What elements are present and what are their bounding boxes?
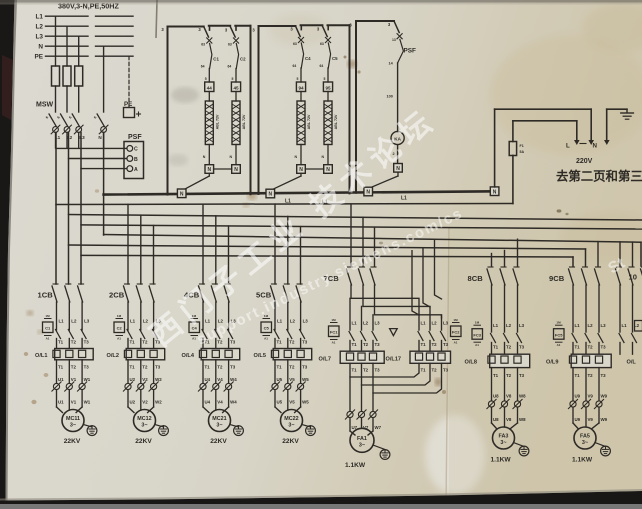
svg-text:T1: T1 (58, 340, 64, 345)
svg-text:22KV: 22KV (135, 438, 152, 445)
svg-text:T2: T2 (432, 342, 438, 347)
svg-text:1M: 1M (556, 321, 561, 325)
svg-text:V1: V1 (71, 400, 77, 405)
svg-text:T3: T3 (230, 340, 236, 345)
svg-text:T2: T2 (142, 340, 148, 345)
svg-text:T3: T3 (375, 342, 381, 347)
svg-text:C5: C5 (332, 56, 338, 61)
svg-text:T1: T1 (352, 368, 358, 373)
svg-text:T3: T3 (519, 373, 525, 378)
svg-text:N: N (366, 190, 370, 196)
svg-text:W5: W5 (302, 377, 309, 382)
svg-text:T2: T2 (142, 365, 148, 370)
svg-text:N: N (295, 155, 298, 159)
svg-text:U2: U2 (130, 400, 136, 405)
svg-text:A1: A1 (264, 337, 268, 341)
svg-text:C: C (134, 147, 138, 153)
svg-text:63: 63 (293, 42, 297, 46)
svg-text:T2: T2 (289, 340, 295, 345)
svg-text:ABL 72V: ABL 72V (307, 114, 311, 129)
svg-text:L2: L2 (506, 323, 512, 328)
svg-text:MC11: MC11 (66, 416, 80, 422)
svg-text:1.1KW: 1.1KW (572, 457, 593, 464)
svg-text:1M: 1M (117, 314, 122, 318)
svg-text:T3: T3 (375, 368, 381, 373)
svg-text:N: N (230, 155, 233, 159)
svg-text:W7: W7 (375, 425, 382, 430)
svg-text:N: N (268, 192, 272, 198)
svg-text:T1: T1 (493, 345, 499, 350)
svg-text:T3: T3 (155, 365, 161, 370)
svg-text:V1: V1 (71, 377, 77, 382)
svg-text:T3: T3 (443, 342, 449, 347)
svg-text:T2: T2 (71, 340, 77, 345)
svg-text:1M: 1M (45, 314, 50, 318)
svg-text:L1: L1 (575, 323, 581, 328)
svg-text:T1: T1 (277, 340, 283, 345)
svg-text:L1: L1 (493, 323, 499, 328)
svg-text:T1: T1 (575, 345, 581, 350)
svg-text:L: L (566, 143, 570, 150)
svg-text:9CB: 9CB (549, 274, 565, 283)
svg-text:FC1: FC1 (330, 330, 338, 335)
svg-text:O/L8: O/L8 (465, 360, 477, 366)
svg-text:3~: 3~ (141, 423, 147, 429)
svg-text:63: 63 (320, 42, 324, 46)
svg-text:95: 95 (325, 85, 331, 90)
svg-text:A1: A1 (557, 343, 561, 347)
svg-text:1M: 1M (331, 318, 336, 322)
svg-text:220V: 220V (576, 158, 593, 165)
svg-text:5A: 5A (520, 150, 525, 154)
svg-text:C4: C4 (305, 56, 311, 61)
svg-text:V5: V5 (289, 400, 295, 405)
svg-text:T1: T1 (277, 365, 283, 370)
svg-text:L2: L2 (67, 135, 73, 140)
svg-text:FA5: FA5 (580, 434, 590, 440)
svg-text:T1: T1 (58, 365, 64, 370)
svg-text:5: 5 (205, 77, 207, 81)
svg-text:ABL 72V: ABL 72V (334, 114, 338, 129)
svg-text:FC2: FC2 (452, 330, 460, 335)
svg-text:13: 13 (392, 38, 396, 42)
svg-text:MSW: MSW (36, 102, 54, 109)
svg-text:1M: 1M (453, 318, 458, 322)
svg-text:T2: T2 (506, 345, 512, 350)
svg-text:U9: U9 (575, 394, 581, 399)
svg-text:100: 100 (387, 95, 393, 99)
svg-text:L2: L2 (432, 321, 438, 326)
svg-text:U9: U9 (575, 417, 581, 422)
svg-text:O/L2: O/L2 (107, 353, 119, 359)
svg-text:N: N (593, 143, 598, 150)
svg-text:22KV: 22KV (64, 438, 81, 445)
svg-text:T2: T2 (289, 365, 295, 370)
svg-text:L3: L3 (79, 135, 85, 140)
svg-text:V8: V8 (506, 394, 512, 399)
svg-text:C2: C2 (117, 326, 123, 331)
svg-text:45: 45 (233, 85, 239, 90)
svg-text:22KV: 22KV (282, 438, 299, 445)
svg-text:63: 63 (228, 43, 232, 47)
svg-text:T1: T1 (421, 342, 427, 347)
svg-text:T2: T2 (588, 345, 594, 350)
svg-text:T1: T1 (575, 373, 581, 378)
svg-text:L3: L3 (303, 319, 309, 324)
svg-text:A1: A1 (46, 337, 50, 341)
svg-text:T3: T3 (302, 365, 308, 370)
svg-text:3~: 3~ (359, 442, 365, 448)
svg-text:94: 94 (298, 85, 304, 90)
svg-text:MC21: MC21 (212, 416, 226, 422)
svg-text:T3: T3 (601, 373, 607, 378)
svg-text:T1: T1 (421, 368, 427, 373)
svg-text:W4: W4 (230, 400, 237, 405)
svg-text:O/L4: O/L4 (182, 353, 195, 359)
svg-text:T3: T3 (230, 365, 236, 370)
svg-text:A1: A1 (117, 337, 121, 341)
svg-text:T1: T1 (205, 365, 211, 370)
svg-text:N: N (203, 155, 206, 159)
svg-text:W9: W9 (601, 394, 608, 399)
svg-text:U5: U5 (277, 400, 283, 405)
svg-text:L2: L2 (71, 319, 77, 324)
svg-text:3~: 3~ (288, 423, 294, 429)
svg-text:L1: L1 (277, 319, 283, 324)
svg-text:U8: U8 (493, 417, 499, 422)
svg-text:5: 5 (297, 77, 299, 81)
svg-text:T2: T2 (363, 342, 369, 347)
svg-text:V2: V2 (142, 400, 148, 405)
svg-text:W2: W2 (155, 377, 162, 382)
svg-text:V2: V2 (142, 377, 148, 382)
svg-text:L1: L1 (36, 14, 44, 21)
svg-text:T3: T3 (84, 365, 90, 370)
svg-text:V9: V9 (588, 394, 594, 399)
svg-text:L3: L3 (519, 323, 525, 328)
svg-text:3~: 3~ (500, 440, 506, 446)
svg-text:L2: L2 (36, 24, 44, 31)
svg-text:W1: W1 (84, 400, 91, 405)
svg-text:C1: C1 (45, 326, 51, 331)
svg-text:U1: U1 (58, 400, 64, 405)
svg-text:8CB: 8CB (468, 274, 484, 283)
svg-text:A1: A1 (475, 343, 479, 347)
svg-text:T3: T3 (519, 345, 525, 350)
svg-text:N: N (38, 44, 43, 51)
svg-text:L1: L1 (352, 321, 358, 326)
svg-text:64: 64 (228, 65, 232, 69)
svg-text:B: B (134, 157, 138, 163)
svg-text:PSF: PSF (404, 48, 417, 55)
svg-text:5: 5 (232, 77, 234, 81)
svg-text:T1: T1 (352, 342, 358, 347)
svg-text:C5: C5 (264, 326, 270, 331)
svg-text:FA3: FA3 (499, 434, 509, 440)
svg-text:1.1KW: 1.1KW (491, 457, 512, 464)
svg-text:N: N (207, 167, 211, 173)
svg-text:O/L5: O/L5 (254, 353, 266, 359)
svg-text:FC5: FC5 (555, 332, 563, 337)
svg-text:PSF: PSF (128, 134, 142, 141)
svg-text:L3: L3 (36, 34, 44, 41)
svg-text:W4: W4 (230, 377, 237, 382)
svg-text:T2: T2 (217, 365, 223, 370)
svg-text:1.1KW: 1.1KW (345, 462, 366, 469)
svg-text:1M: 1M (475, 321, 480, 325)
svg-text:L2: L2 (588, 323, 594, 328)
svg-text:PE: PE (34, 54, 43, 61)
svg-text:A1: A1 (332, 341, 336, 345)
svg-text:去第二页和第三: 去第二页和第三 (556, 169, 642, 184)
svg-text:T3: T3 (302, 340, 308, 345)
svg-text:C1: C1 (213, 57, 219, 62)
svg-text:A: A (134, 167, 138, 173)
svg-text:N: N (326, 167, 330, 173)
svg-text:3~: 3~ (70, 423, 76, 429)
svg-text:F1: F1 (520, 144, 524, 148)
svg-text:44: 44 (207, 85, 213, 90)
svg-text:O/L: O/L (627, 360, 637, 366)
svg-text:L1: L1 (59, 319, 65, 324)
svg-text:L2: L2 (290, 319, 296, 324)
svg-text:5: 5 (324, 77, 326, 81)
svg-text:L1: L1 (130, 319, 136, 324)
svg-text:T2: T2 (363, 368, 369, 373)
svg-text:W8: W8 (519, 394, 526, 399)
svg-text:C2: C2 (240, 57, 246, 62)
svg-text:T1: T1 (493, 373, 499, 378)
svg-text:T3: T3 (443, 368, 449, 373)
svg-text:L1: L1 (421, 321, 427, 326)
svg-text:U4: U4 (205, 400, 211, 405)
svg-text:O/L17: O/L17 (386, 357, 402, 363)
svg-text:N: N (396, 166, 400, 172)
svg-text:1CB: 1CB (38, 291, 54, 300)
svg-text:ABL 72V: ABL 72V (242, 114, 246, 129)
svg-text:T2: T2 (71, 365, 77, 370)
svg-text:L1: L1 (622, 323, 628, 328)
svg-text:3~: 3~ (216, 423, 222, 429)
svg-text:T2: T2 (588, 373, 594, 378)
svg-text:63: 63 (201, 43, 205, 47)
svg-text:V5: V5 (289, 377, 295, 382)
svg-text:N: N (180, 191, 184, 197)
svg-text:W1: W1 (84, 377, 91, 382)
svg-text:22KV: 22KV (210, 438, 227, 445)
svg-text:O/L9: O/L9 (546, 360, 558, 366)
svg-text:O/L7: O/L7 (319, 357, 331, 363)
svg-text:A1: A1 (454, 341, 458, 345)
svg-text:V8: V8 (506, 417, 512, 422)
svg-text:64: 64 (293, 64, 297, 68)
svg-text:MC12: MC12 (137, 416, 151, 422)
svg-text:W2: W2 (155, 400, 162, 405)
svg-text:W9: W9 (601, 417, 608, 422)
svg-text:L3: L3 (84, 319, 90, 324)
svg-text:O/L1: O/L1 (35, 353, 47, 359)
svg-text:N: N (493, 189, 497, 195)
svg-text:U8: U8 (493, 394, 499, 399)
svg-text:T1: T1 (130, 340, 136, 345)
svg-text:64: 64 (201, 65, 205, 69)
svg-text:W5: W5 (302, 400, 309, 405)
svg-text:V4: V4 (217, 377, 223, 382)
svg-text:3~: 3~ (582, 440, 588, 446)
svg-text:L3: L3 (443, 321, 449, 326)
svg-text:T3: T3 (84, 340, 90, 345)
svg-text:L3: L3 (375, 321, 381, 326)
svg-text:L3: L3 (601, 323, 607, 328)
svg-text:T2: T2 (506, 373, 512, 378)
svg-text:V4: V4 (217, 400, 223, 405)
svg-text:N: N (234, 167, 238, 173)
svg-text:2CB: 2CB (109, 291, 125, 300)
svg-text:N: N (299, 167, 303, 173)
svg-text:64: 64 (320, 64, 324, 68)
svg-text:W8: W8 (519, 417, 526, 422)
svg-text:ABL 72V: ABL 72V (215, 114, 219, 129)
svg-text:FA1: FA1 (357, 436, 367, 442)
svg-text:T1: T1 (130, 365, 136, 370)
svg-text:L1: L1 (401, 196, 407, 202)
svg-text:L2: L2 (363, 321, 369, 326)
svg-text:V9: V9 (588, 417, 594, 422)
svg-text:T3: T3 (601, 345, 607, 350)
svg-text:N: N (322, 155, 325, 159)
svg-text:FC3: FC3 (473, 332, 481, 337)
svg-text:MC22: MC22 (284, 416, 298, 422)
svg-text:T2: T2 (432, 368, 438, 373)
